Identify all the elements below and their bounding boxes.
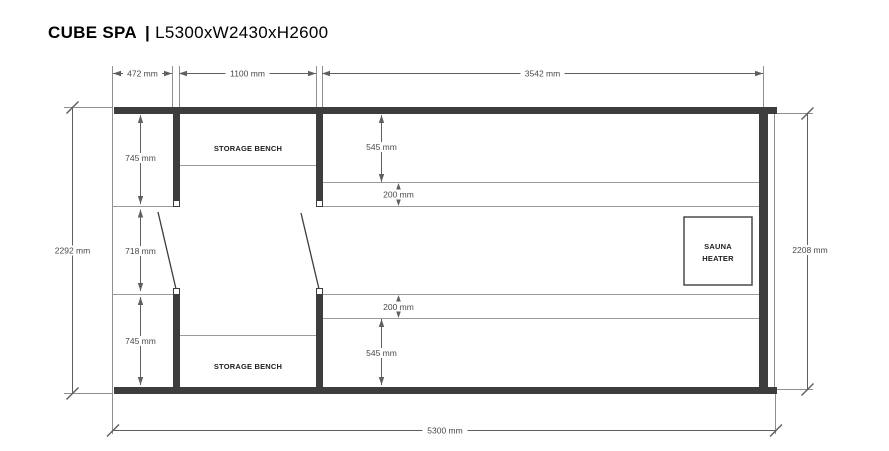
dim-left-745-bottom-label: 745 mm [125,336,156,346]
dimension-200-bottom: 200 mm [383,295,414,318]
floor-plan-drawing: SAUNA HEATER STORAGE BENCH STORAGE BENCH… [0,0,889,451]
dim-545-top-label: 545 mm [366,142,397,152]
interior-walls [173,114,323,387]
dim-left-overall-label: 2292 mm [55,246,90,256]
dim-left-745-top-label: 745 mm [125,153,156,163]
dimension-200-top: 200 mm [383,183,414,206]
dimension-right-overall-2208: 2208 mm [788,108,833,396]
sauna-heater: SAUNA HEATER [684,217,752,285]
dim-545-bottom-label: 545 mm [366,348,397,358]
dimension-bottom-overall-5300: 5300 mm [107,425,782,437]
partition-left-top [173,114,180,200]
dim-left-718-label: 718 mm [125,246,156,256]
dim-bottom-overall-label: 5300 mm [427,426,462,436]
bench-lines [112,166,759,336]
dimension-top-1100: 1100 mm [179,69,316,79]
dim-top-472-label: 472 mm [127,69,158,79]
dim-top-3542-label: 3542 mm [525,69,560,79]
dim-right-overall-label: 2208 mm [792,245,827,255]
dimension-top-472: 472 mm [113,69,172,79]
floor-plan-page: CUBE SPA|L5300xW2430xH2600 [0,0,889,451]
sauna-heater-box [684,217,752,285]
sauna-heater-label-2: HEATER [702,254,734,263]
dimension-545-top: 545 mm [362,115,401,182]
partition-right-bottom [316,295,323,387]
dim-200-top-label: 200 mm [383,190,414,200]
right-wall [759,107,768,394]
dim-200-bottom-label: 200 mm [383,302,414,312]
outer-walls [113,107,778,394]
door-left-leaf [158,212,176,289]
dimension-left-overall-2292: 2292 mm [50,102,95,400]
partition-left-bottom [173,295,180,387]
storage-bench-bottom-label: STORAGE BENCH [214,362,282,371]
storage-bench-top-label: STORAGE BENCH [214,144,282,153]
sauna-heater-label-1: SAUNA [704,242,732,251]
dimension-left-718: 718 mm [121,210,160,292]
bottom-wall [114,387,777,394]
top-wall [114,107,777,114]
dim-top-1100-label: 1100 mm [230,69,265,79]
dimension-left-745-bottom: 745 mm [121,297,160,385]
partition-right-top [316,114,323,200]
dimension-left-745-top: 745 mm [121,115,160,204]
door-right-leaf [301,213,319,289]
dimension-top-3542: 3542 mm [322,69,763,79]
dimension-545-bottom: 545 mm [362,319,401,385]
doors [158,212,319,289]
